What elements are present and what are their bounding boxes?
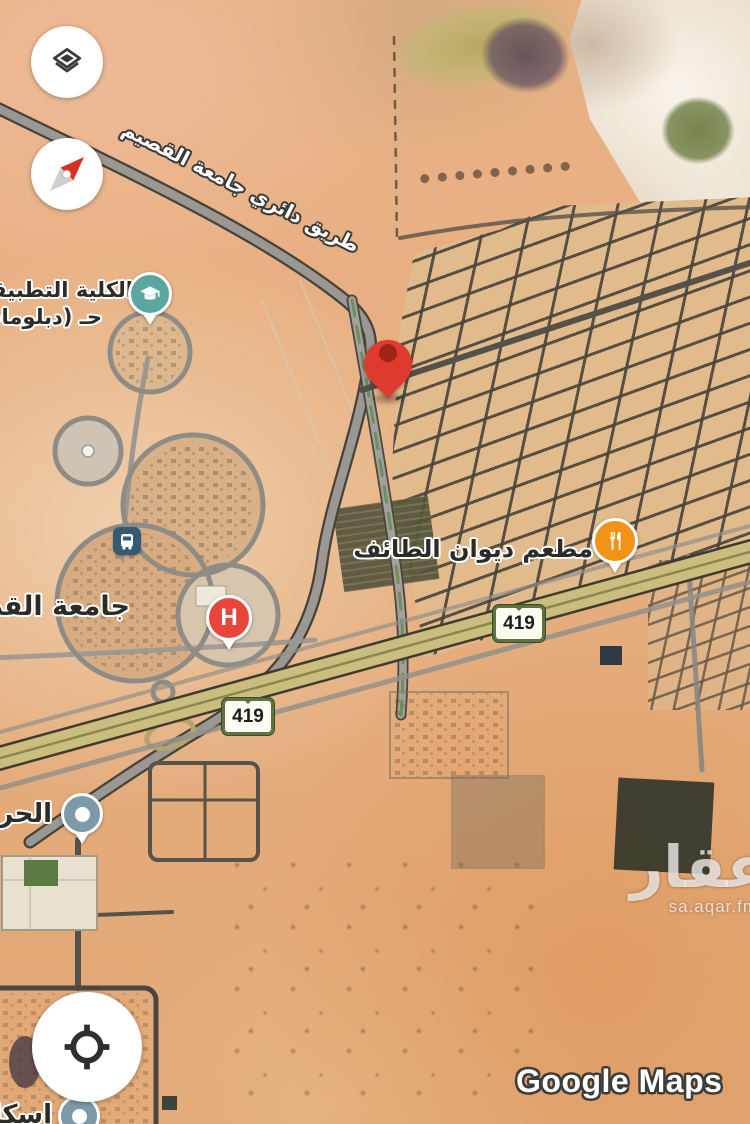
- college-label-line2: حـ (دبلومات): [0, 304, 133, 331]
- university-label[interactable]: جامعة القصيم: [0, 591, 130, 622]
- route-badge-419-west: 419: [222, 698, 274, 735]
- guard-label[interactable]: الحرس: [0, 799, 52, 829]
- route-number: 419: [232, 706, 264, 728]
- badge-notch: [242, 698, 254, 704]
- hospital-letter: H: [220, 604, 237, 632]
- pin-tail: [75, 833, 89, 844]
- dot-icon: [72, 1109, 87, 1124]
- google-maps-logo[interactable]: Google Maps: [516, 1063, 722, 1100]
- college-pin[interactable]: [128, 272, 172, 325]
- watermark-title: عقار: [630, 838, 750, 896]
- pin-tail: [608, 562, 622, 573]
- my-location-button[interactable]: [32, 992, 142, 1102]
- layers-button[interactable]: [31, 26, 103, 98]
- pin-tail: [143, 314, 157, 325]
- crosshair-icon: [61, 1021, 113, 1073]
- pin-tail: [222, 639, 236, 650]
- google-maps-satellite-screen: { "branding": { "logo_text": "Google Map…: [0, 0, 750, 1124]
- route-badge-419-east: 419: [493, 605, 545, 642]
- satellite-map[interactable]: طريق دائري جامعة القصيم الكلية التطبيقية…: [0, 0, 750, 1124]
- dot-icon: [75, 807, 90, 822]
- destination-pin[interactable]: [364, 340, 412, 388]
- route-number: 419: [503, 613, 535, 635]
- guard-pin[interactable]: [61, 793, 103, 844]
- layers-icon: [48, 43, 86, 81]
- fork-knife-icon: [604, 530, 626, 552]
- pin-body: [354, 330, 422, 398]
- restaurant-label[interactable]: مطعم ديوان الطائف: [353, 535, 593, 563]
- badge-notch: [513, 605, 525, 611]
- bus-station-marker[interactable]: [113, 527, 141, 555]
- graduation-cap-icon: [138, 282, 162, 306]
- bus-icon: [118, 532, 136, 550]
- aqar-watermark: عقار sa.aqar.fm: [630, 838, 750, 915]
- compass-icon: [44, 151, 91, 198]
- pin-hole: [379, 344, 397, 362]
- college-label-line1: الكلية التطبيقية: [0, 277, 133, 304]
- hospital-pin[interactable]: H: [206, 595, 252, 650]
- college-label[interactable]: الكلية التطبيقية حـ (دبلومات): [0, 277, 133, 331]
- restaurant-pin[interactable]: [592, 518, 638, 573]
- housing-label[interactable]: إسكان: [0, 1100, 52, 1124]
- compass-button[interactable]: [31, 138, 103, 210]
